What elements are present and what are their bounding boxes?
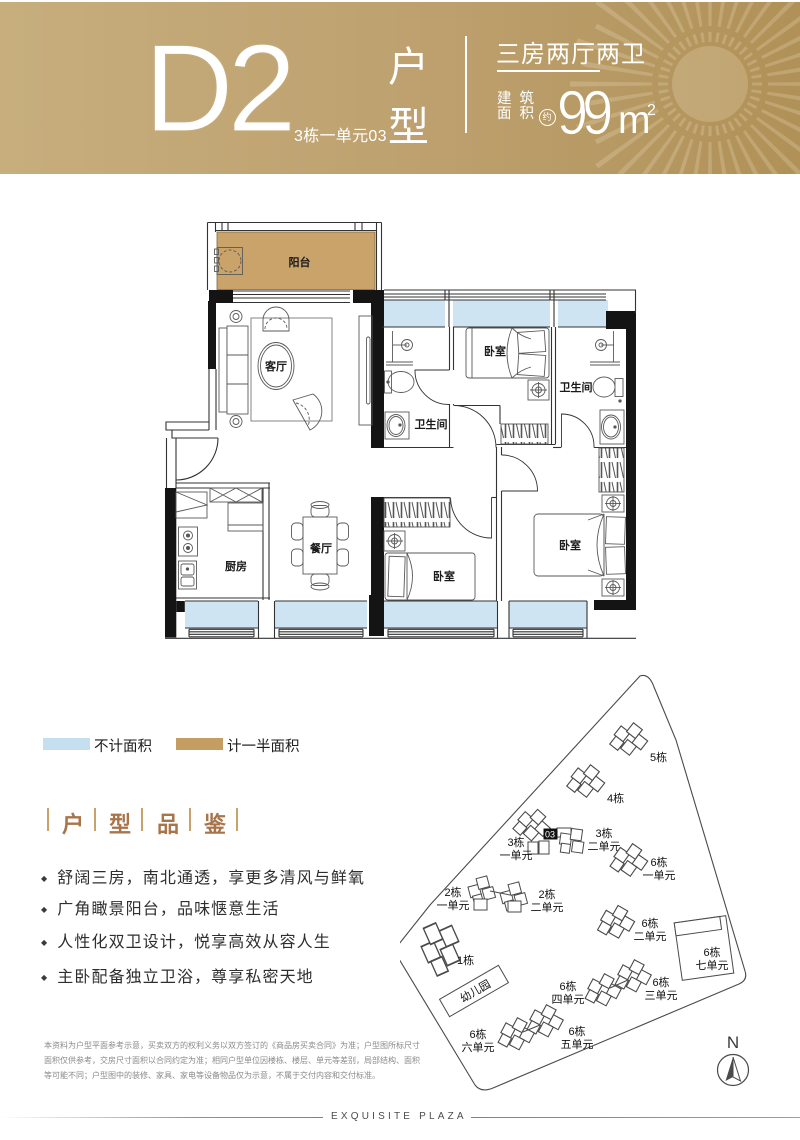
svg-text:3栋: 3栋: [507, 835, 524, 849]
svg-text:3栋: 3栋: [595, 826, 612, 840]
svg-text:一单元: 一单元: [500, 849, 533, 862]
svg-text:六单元: 六单元: [462, 1041, 495, 1054]
svg-text:6栋: 6栋: [650, 855, 667, 869]
svg-text:6栋: 6栋: [703, 945, 720, 959]
svg-text:1栋: 1栋: [457, 953, 474, 967]
svg-text:4栋: 4栋: [607, 791, 624, 805]
svg-text:阳台: 阳台: [289, 255, 311, 269]
svg-text:2栋: 2栋: [538, 887, 555, 901]
svg-text:6栋: 6栋: [559, 979, 576, 993]
svg-text:一单元: 一单元: [437, 899, 470, 912]
svg-text:6栋: 6栋: [641, 916, 658, 930]
svg-text:5栋: 5栋: [650, 750, 667, 764]
svg-text:三单元: 三单元: [645, 989, 678, 1002]
svg-text:厨房: 厨房: [225, 559, 247, 573]
svg-text:卧室: 卧室: [484, 344, 506, 358]
svg-text:卫生间: 卫生间: [560, 380, 593, 394]
svg-text:二单元: 二单元: [634, 930, 667, 943]
svg-text:卧室: 卧室: [433, 569, 455, 583]
svg-text:五单元: 五单元: [561, 1038, 594, 1051]
svg-text:卧室: 卧室: [559, 538, 581, 552]
svg-text:餐厅: 餐厅: [309, 541, 332, 555]
svg-text:6栋: 6栋: [469, 1027, 486, 1041]
svg-text:6栋: 6栋: [568, 1024, 585, 1038]
svg-text:6栋: 6栋: [652, 975, 669, 989]
svg-text:四单元: 四单元: [552, 993, 585, 1006]
svg-text:N: N: [727, 1033, 739, 1052]
svg-text:二单元: 二单元: [531, 901, 564, 914]
svg-text:2栋: 2栋: [444, 885, 461, 899]
svg-text:客厅: 客厅: [264, 359, 287, 373]
svg-text:03: 03: [545, 830, 555, 840]
svg-text:七单元: 七单元: [696, 959, 729, 972]
svg-text:二单元: 二单元: [588, 840, 621, 853]
svg-text:卫生间: 卫生间: [415, 417, 448, 431]
svg-text:一单元: 一单元: [643, 869, 676, 882]
